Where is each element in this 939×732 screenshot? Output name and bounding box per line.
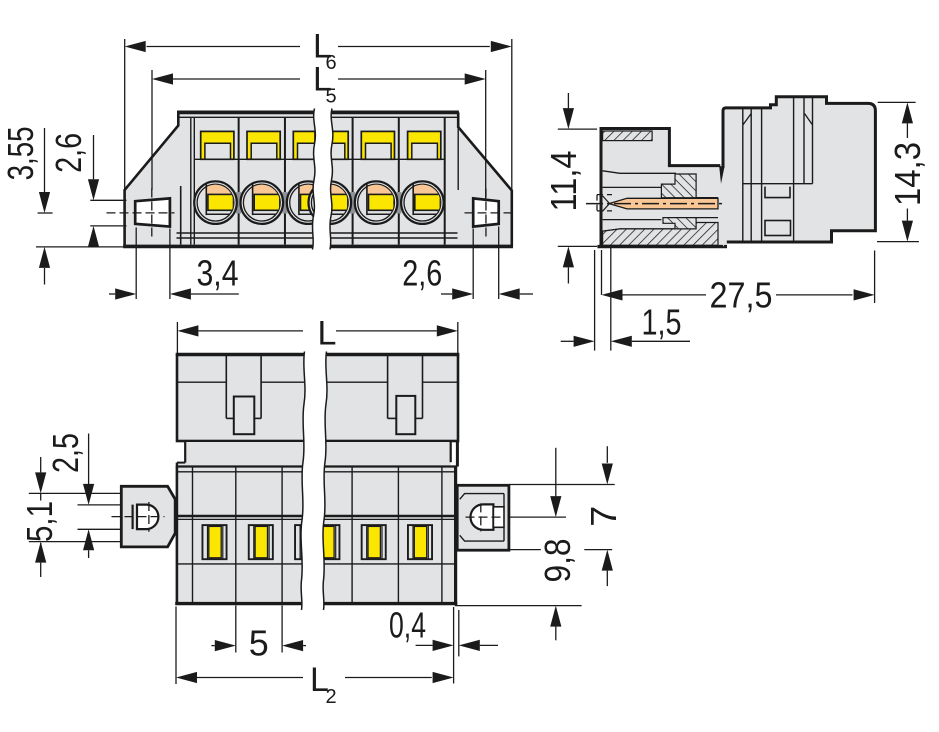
svg-text:5,1: 5,1: [19, 501, 60, 542]
svg-text:7: 7: [583, 506, 624, 527]
svg-text:14,3: 14,3: [887, 142, 928, 206]
svg-text:11,4: 11,4: [543, 151, 584, 212]
svg-text:5: 5: [326, 86, 337, 108]
svg-text:27,5: 27,5: [710, 275, 773, 316]
svg-text:2,6: 2,6: [48, 133, 89, 173]
svg-text:2,5: 2,5: [45, 433, 86, 473]
svg-text:L: L: [318, 315, 337, 353]
svg-text:2: 2: [326, 686, 337, 708]
svg-text:9,8: 9,8: [537, 539, 578, 583]
svg-text:2,6: 2,6: [402, 253, 442, 294]
svg-text:5: 5: [249, 623, 269, 664]
svg-text:0,4: 0,4: [389, 605, 426, 646]
svg-text:3,4: 3,4: [197, 253, 239, 294]
svg-text:1,5: 1,5: [642, 302, 682, 343]
svg-text:3,55: 3,55: [0, 126, 41, 180]
